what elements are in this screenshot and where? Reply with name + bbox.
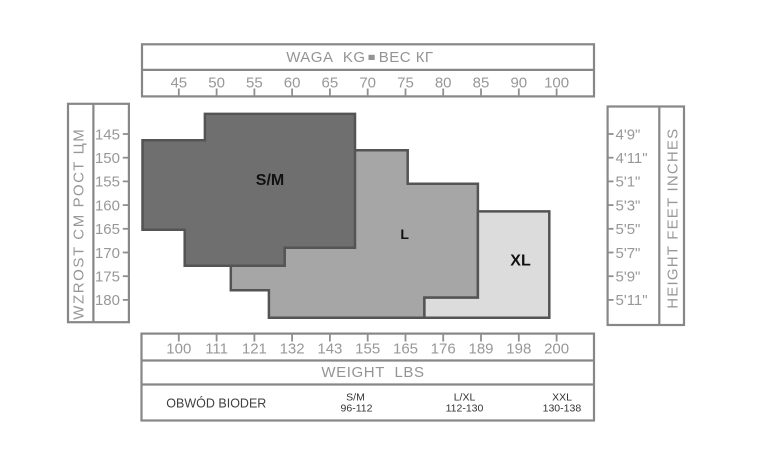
svg-text:176: 176 (431, 341, 456, 358)
svg-text:5'9": 5'9" (616, 269, 641, 286)
svg-text:121: 121 (242, 341, 267, 358)
svg-text:170: 170 (95, 245, 120, 262)
svg-text:160: 160 (95, 197, 120, 214)
svg-text:WEIGHT LBS: WEIGHT LBS (321, 364, 424, 381)
svg-text:198: 198 (506, 341, 531, 358)
svg-text:175: 175 (95, 269, 120, 286)
svg-text:WAGA KG: WAGA KG (286, 49, 365, 66)
svg-text:112-130: 112-130 (446, 403, 484, 415)
svg-text:OBWÓD BIODER: OBWÓD BIODER (166, 396, 266, 411)
svg-text:4'11": 4'11" (616, 150, 648, 167)
svg-text:5'7": 5'7" (616, 245, 641, 262)
svg-text:4'9": 4'9" (616, 126, 641, 143)
svg-text:WZROST CM РОСТ ЦМ: WZROST CM РОСТ ЦМ (71, 128, 88, 320)
svg-text:L: L (400, 226, 409, 242)
svg-text:111: 111 (205, 341, 228, 358)
svg-text:189: 189 (468, 341, 493, 358)
svg-text:150: 150 (95, 150, 120, 167)
svg-text:143: 143 (317, 341, 342, 358)
svg-text:96-112: 96-112 (341, 403, 373, 415)
svg-text:HEIGHT FEET INCHES: HEIGHT FEET INCHES (665, 128, 682, 309)
svg-text:180: 180 (95, 292, 120, 309)
svg-text:132: 132 (280, 341, 305, 358)
svg-text:5'5": 5'5" (616, 221, 641, 238)
svg-text:5'11": 5'11" (616, 292, 648, 309)
svg-text:155: 155 (95, 174, 120, 191)
svg-text:S/M: S/M (256, 172, 284, 189)
svg-text:155: 155 (355, 341, 380, 358)
svg-text:5'1": 5'1" (616, 174, 641, 191)
svg-text:XL: XL (510, 253, 531, 270)
svg-text:200: 200 (544, 341, 569, 358)
svg-text:ВЕС КГ: ВЕС КГ (379, 49, 434, 66)
svg-text:165: 165 (95, 221, 120, 238)
svg-text:100: 100 (166, 341, 191, 358)
svg-text:145: 145 (95, 126, 120, 143)
svg-text:5'3": 5'3" (616, 197, 641, 214)
svg-text:165: 165 (393, 341, 418, 358)
svg-text:130-138: 130-138 (543, 403, 582, 415)
